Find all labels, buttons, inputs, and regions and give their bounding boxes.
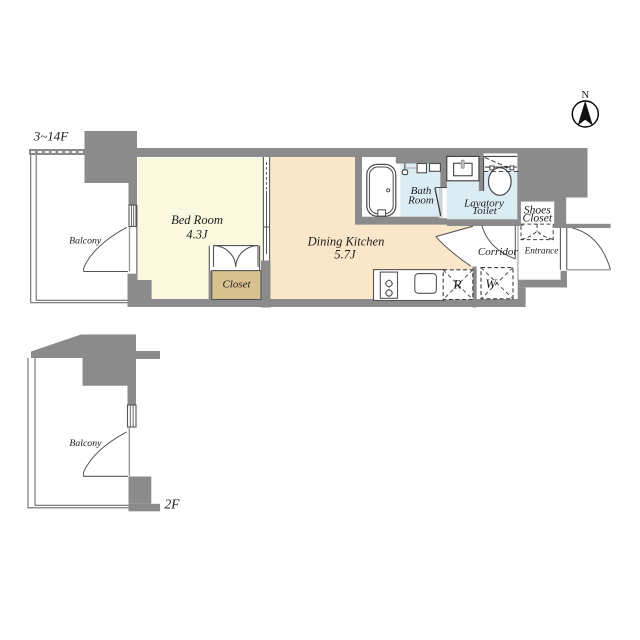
svg-text:N: N	[582, 90, 590, 101]
svg-text:3~14F: 3~14F	[33, 129, 70, 144]
svg-text:Dining Kitchen: Dining Kitchen	[307, 235, 385, 249]
svg-text:Closet: Closet	[222, 279, 251, 291]
svg-text:Toilet: Toilet	[472, 205, 498, 217]
svg-text:Room: Room	[407, 195, 434, 207]
svg-text:4.3J: 4.3J	[186, 228, 209, 242]
svg-text:Balcony: Balcony	[69, 438, 102, 449]
svg-text:W: W	[485, 276, 497, 291]
svg-text:Balcony: Balcony	[69, 236, 102, 247]
svg-text:R: R	[452, 277, 461, 292]
svg-text:2F: 2F	[165, 497, 181, 512]
svg-text:Closet: Closet	[522, 212, 552, 225]
svg-text:Bed Room: Bed Room	[171, 213, 223, 227]
svg-text:Corridor: Corridor	[478, 246, 518, 258]
svg-text:5.7J: 5.7J	[334, 248, 357, 262]
svg-text:Entrance: Entrance	[524, 246, 559, 256]
